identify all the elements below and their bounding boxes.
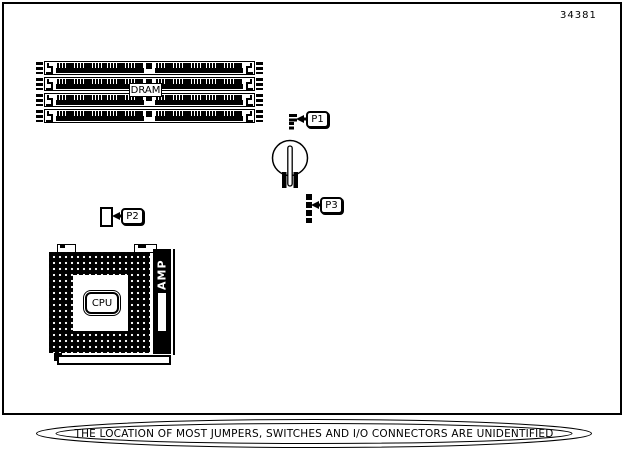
p3-label: P3 [320, 197, 343, 214]
slot-end-bracket [36, 110, 43, 122]
pin-row [155, 111, 243, 121]
diagram-page: 34381 [0, 0, 626, 453]
dram-slot-body [44, 109, 255, 123]
slot-clip-icon [46, 63, 55, 74]
caption-text: THE LOCATION OF MOST JUMPERS, SWITCHES A… [34, 417, 594, 450]
dram-label: DRAM [129, 83, 162, 97]
slot-clip-icon [46, 111, 55, 122]
dram-slot [36, 109, 263, 123]
jumper-block [289, 122, 294, 130]
amp-connector-slot [157, 292, 167, 332]
slot-clip-icon [46, 79, 55, 90]
caption: THE LOCATION OF MOST JUMPERS, SWITCHES A… [34, 417, 594, 451]
socket-lever [57, 355, 171, 365]
pin-row [56, 111, 144, 121]
amp-connector-outline [173, 249, 175, 355]
slot-key [146, 63, 152, 69]
dram-slot-body [44, 61, 255, 75]
slot-end-bracket [256, 62, 263, 74]
pin-row [155, 95, 243, 105]
tab-mark [60, 245, 65, 248]
slot-clip-icon [244, 111, 253, 122]
slot-clip-icon [244, 79, 253, 90]
tab-mark [138, 245, 146, 248]
slot-end-bracket [36, 78, 43, 90]
battery-icon [271, 139, 311, 191]
p1-label: P1 [306, 111, 329, 128]
slot-clip-icon [244, 95, 253, 106]
slot-end-bracket [256, 78, 263, 90]
pin-row [155, 79, 243, 89]
slot-key [146, 111, 152, 117]
p2-label: P2 [121, 208, 144, 225]
slot-end-bracket [36, 62, 43, 74]
part-number: 34381 [560, 10, 608, 21]
slot-clip-icon [46, 95, 55, 106]
slot-end-bracket [256, 94, 263, 106]
dram-slot [36, 61, 263, 75]
cpu-label: CPU [85, 292, 119, 314]
pin-row [56, 63, 144, 73]
slot-end-bracket [36, 94, 43, 106]
slot-end-bracket [256, 110, 263, 122]
slot-clip-icon [244, 63, 253, 74]
dram-bank: DRAM [36, 61, 263, 123]
pin-row [155, 63, 243, 73]
